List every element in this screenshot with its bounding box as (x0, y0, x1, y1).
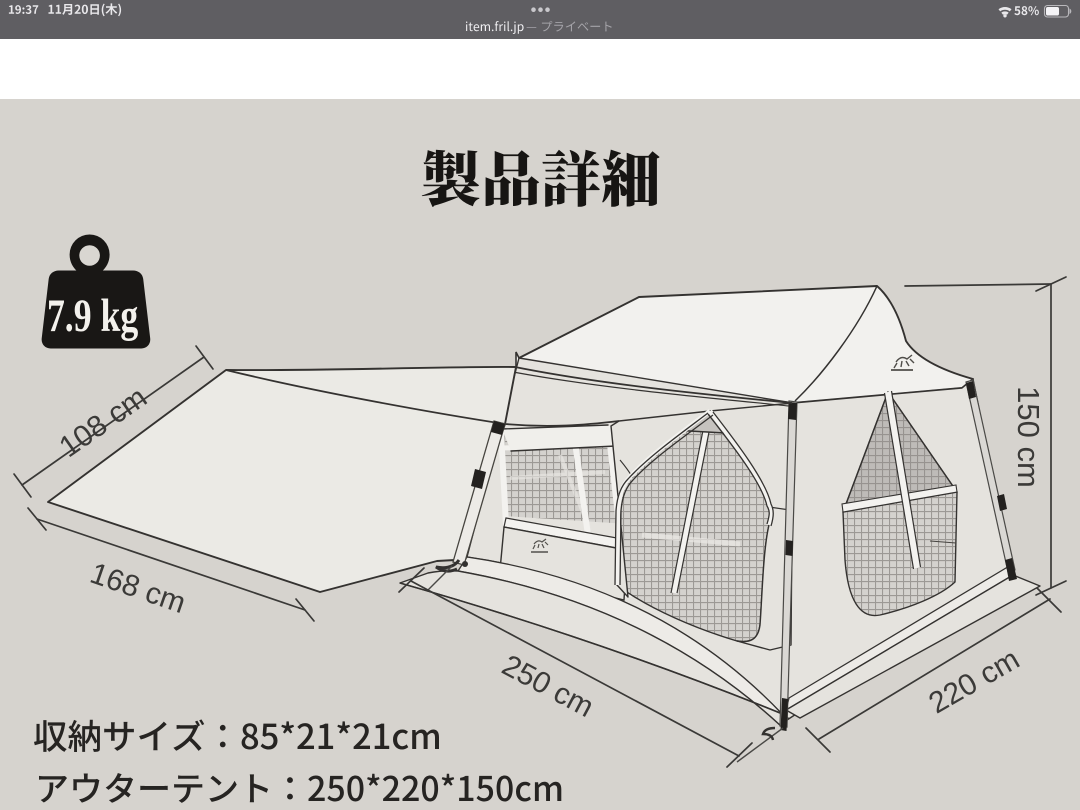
svg-text:150 cm: 150 cm (1011, 386, 1046, 488)
svg-text:7.9 kg: 7.9 kg (47, 290, 138, 342)
